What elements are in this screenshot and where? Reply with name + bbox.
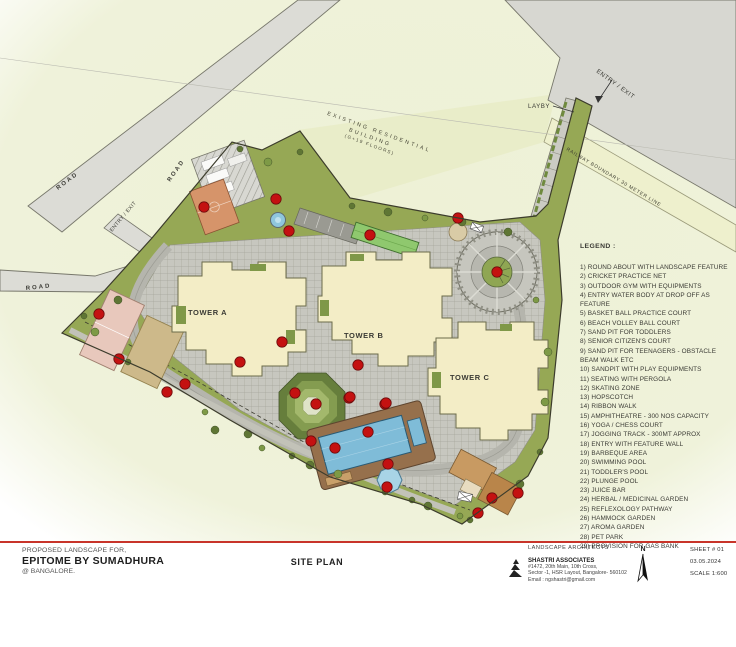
legend-item: 13) HOPSCOTCH	[580, 393, 732, 402]
plan-marker-icon	[277, 337, 287, 347]
tree-icon	[114, 296, 122, 304]
sheet-number: SHEET # 01	[690, 547, 727, 553]
plan-marker-icon	[284, 226, 294, 236]
tree-icon	[334, 470, 342, 478]
legend-item: 21) TODDLER'S POOL	[580, 468, 732, 477]
tower-c-label: TOWER C	[450, 373, 489, 382]
tree-icon	[349, 203, 355, 209]
legend-item: 15) AMPHITHEATRE - 300 NOS CAPACITY	[580, 412, 732, 421]
tree-icon	[457, 513, 463, 519]
legend-item: 10) SANDPIT WITH PLAY EQUIPMENTS	[580, 365, 732, 374]
tower-b-label: TOWER B	[344, 331, 383, 340]
legend-item: 5) BASKET BALL PRACTICE COURT	[580, 309, 732, 318]
legend-item: 17) JOGGING TRACK - 300MT APPROX	[580, 430, 732, 439]
plan-marker-icon	[383, 459, 393, 469]
legend-item: 26) HAMMOCK GARDEN	[580, 514, 732, 523]
site-plan-sheet: TOWER A TOWER B TOWER C ROAD ROAD ROAD E…	[0, 0, 736, 647]
project-location: @ BANGALORE.	[22, 568, 164, 575]
legend-item: 24) HERBAL / MEDICINAL GARDEN	[580, 495, 732, 504]
legend-item: 19) BARBEQUE AREA	[580, 449, 732, 458]
legend-item: 7) SAND PIT FOR TODDLERS	[580, 328, 732, 337]
plan-marker-icon	[353, 360, 363, 370]
plan-marker-icon	[513, 488, 523, 498]
tower-a-label: TOWER A	[188, 308, 227, 317]
tree-icon	[297, 149, 303, 155]
legend-item: 11) SEATING WITH PERGOLA	[580, 375, 732, 384]
tree-icon	[264, 158, 272, 166]
tree-icon	[91, 328, 99, 336]
legend-item: 6) BEACH VOLLEY BALL COURT	[580, 319, 732, 328]
plan-marker-icon	[199, 202, 209, 212]
plan-marker-icon	[345, 392, 355, 402]
tree-icon	[544, 348, 552, 356]
sheet-scale: SCALE 1:600	[690, 571, 727, 577]
legend-item: 25) REFLEXOLOGY PATHWAY	[580, 505, 732, 514]
sheet-date: 03.05.2024	[690, 559, 727, 565]
plan-marker-icon	[162, 387, 172, 397]
legend-item: 23) JUICE BAR	[580, 486, 732, 495]
titleblock-divider	[0, 541, 736, 543]
firm-logo-icon	[508, 558, 524, 583]
tree-icon	[384, 208, 392, 216]
tree-icon	[202, 409, 208, 415]
plan-marker-icon	[114, 354, 124, 364]
legend-title: LEGEND :	[580, 243, 732, 250]
plan-marker-icon	[492, 267, 502, 277]
plan-marker-icon	[382, 482, 392, 492]
plan-marker-icon	[180, 379, 190, 389]
plan-marker-icon	[271, 194, 281, 204]
plan-marker-icon	[311, 399, 321, 409]
tree-icon	[211, 426, 219, 434]
plan-marker-icon	[365, 230, 375, 240]
legend-item: 16) YOGA / CHESS COURT	[580, 421, 732, 430]
plan-marker-icon	[235, 357, 245, 367]
drawing-title: SITE PLAN	[262, 557, 372, 567]
plan-marker-icon	[306, 436, 316, 446]
legend-item: 1) ROUND ABOUT WITH LANDSCAPE FEATURE	[580, 263, 732, 272]
tree-icon	[541, 398, 549, 406]
legend-item: 12) SKATING ZONE	[580, 384, 732, 393]
north-arrow-icon	[631, 553, 655, 583]
legend-item: 3) OUTDOOR GYM WITH EQUIPMENTS	[580, 282, 732, 291]
tree-icon	[504, 228, 512, 236]
layby-label: LAYBY	[528, 103, 550, 110]
legend-item: 8) SENIOR CITIZEN'S COURT	[580, 337, 732, 346]
plan-marker-icon	[381, 398, 391, 408]
legend-item: 2) CRICKET PRACTICE NET	[580, 272, 732, 281]
legend-item: 14) RIBBON WALK	[580, 402, 732, 411]
legend-item: 4) ENTRY WATER BODY AT DROP OFF AS FEATU…	[580, 291, 732, 310]
legend-item: 27) AROMA GARDEN	[580, 523, 732, 532]
plan-marker-icon	[330, 443, 340, 453]
dropoff-feature	[449, 223, 467, 241]
legend-item: 22) PLUNGE POOL	[580, 477, 732, 486]
north-label: N	[630, 546, 656, 553]
plan-marker-icon	[290, 388, 300, 398]
project-name: EPITOME BY SUMADHURA	[22, 555, 164, 567]
legend: LEGEND : 1) ROUND ABOUT WITH LANDSCAPE F…	[580, 243, 732, 551]
north-arrow: N	[630, 546, 656, 588]
legend-item: 20) SWIMMING POOL	[580, 458, 732, 467]
tree-icon	[237, 146, 243, 152]
legend-items: 1) ROUND ABOUT WITH LANDSCAPE FEATURE2) …	[580, 263, 732, 551]
project-title-block: PROPOSED LANDSCAPE FOR, EPITOME BY SUMAD…	[22, 547, 164, 575]
legend-item: 9) SAND PIT FOR TEENAGERS - OBSTACLE BEA…	[580, 347, 732, 366]
plan-marker-icon	[94, 309, 104, 319]
water-body-center	[275, 217, 281, 223]
sheet-meta: SHEET # 01 03.05.2024 SCALE 1:600	[690, 547, 727, 583]
tree-icon	[533, 297, 539, 303]
plan-marker-icon	[363, 427, 373, 437]
tree-icon	[422, 215, 428, 221]
tree-icon	[259, 445, 265, 451]
legend-item: 18) ENTRY WITH FEATURE WALL	[580, 440, 732, 449]
project-label: PROPOSED LANDSCAPE FOR,	[22, 547, 164, 554]
